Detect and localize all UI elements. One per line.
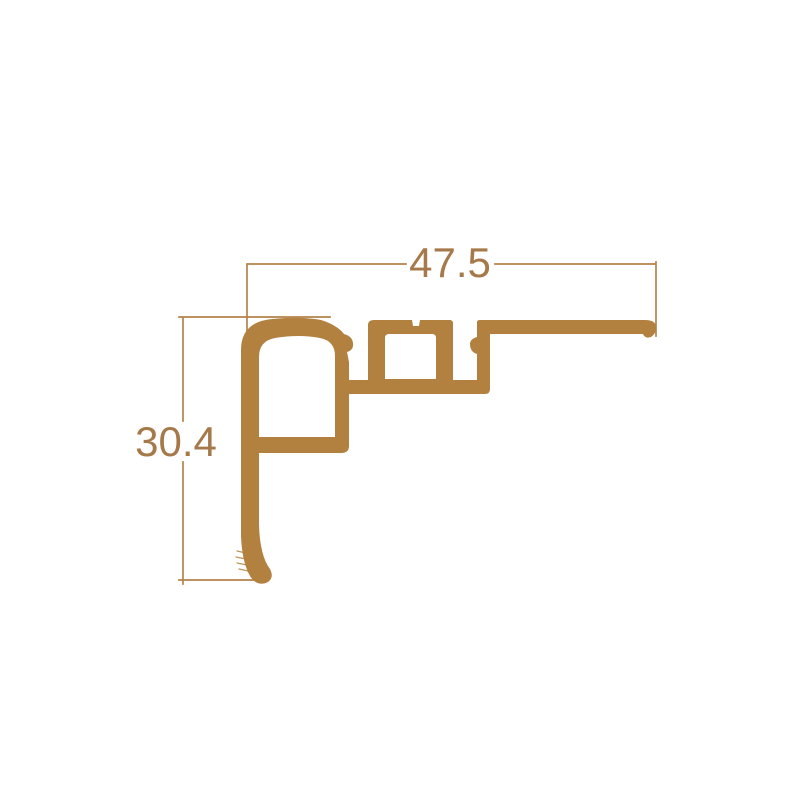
profile-drawing: 47.5 30.4 xyxy=(0,0,800,800)
profile-cross-section xyxy=(241,318,656,584)
width-dimension-label: 47.5 xyxy=(409,239,491,286)
drawing-canvas: 47.5 30.4 xyxy=(0,0,800,800)
height-dimension-label: 30.4 xyxy=(135,418,217,465)
